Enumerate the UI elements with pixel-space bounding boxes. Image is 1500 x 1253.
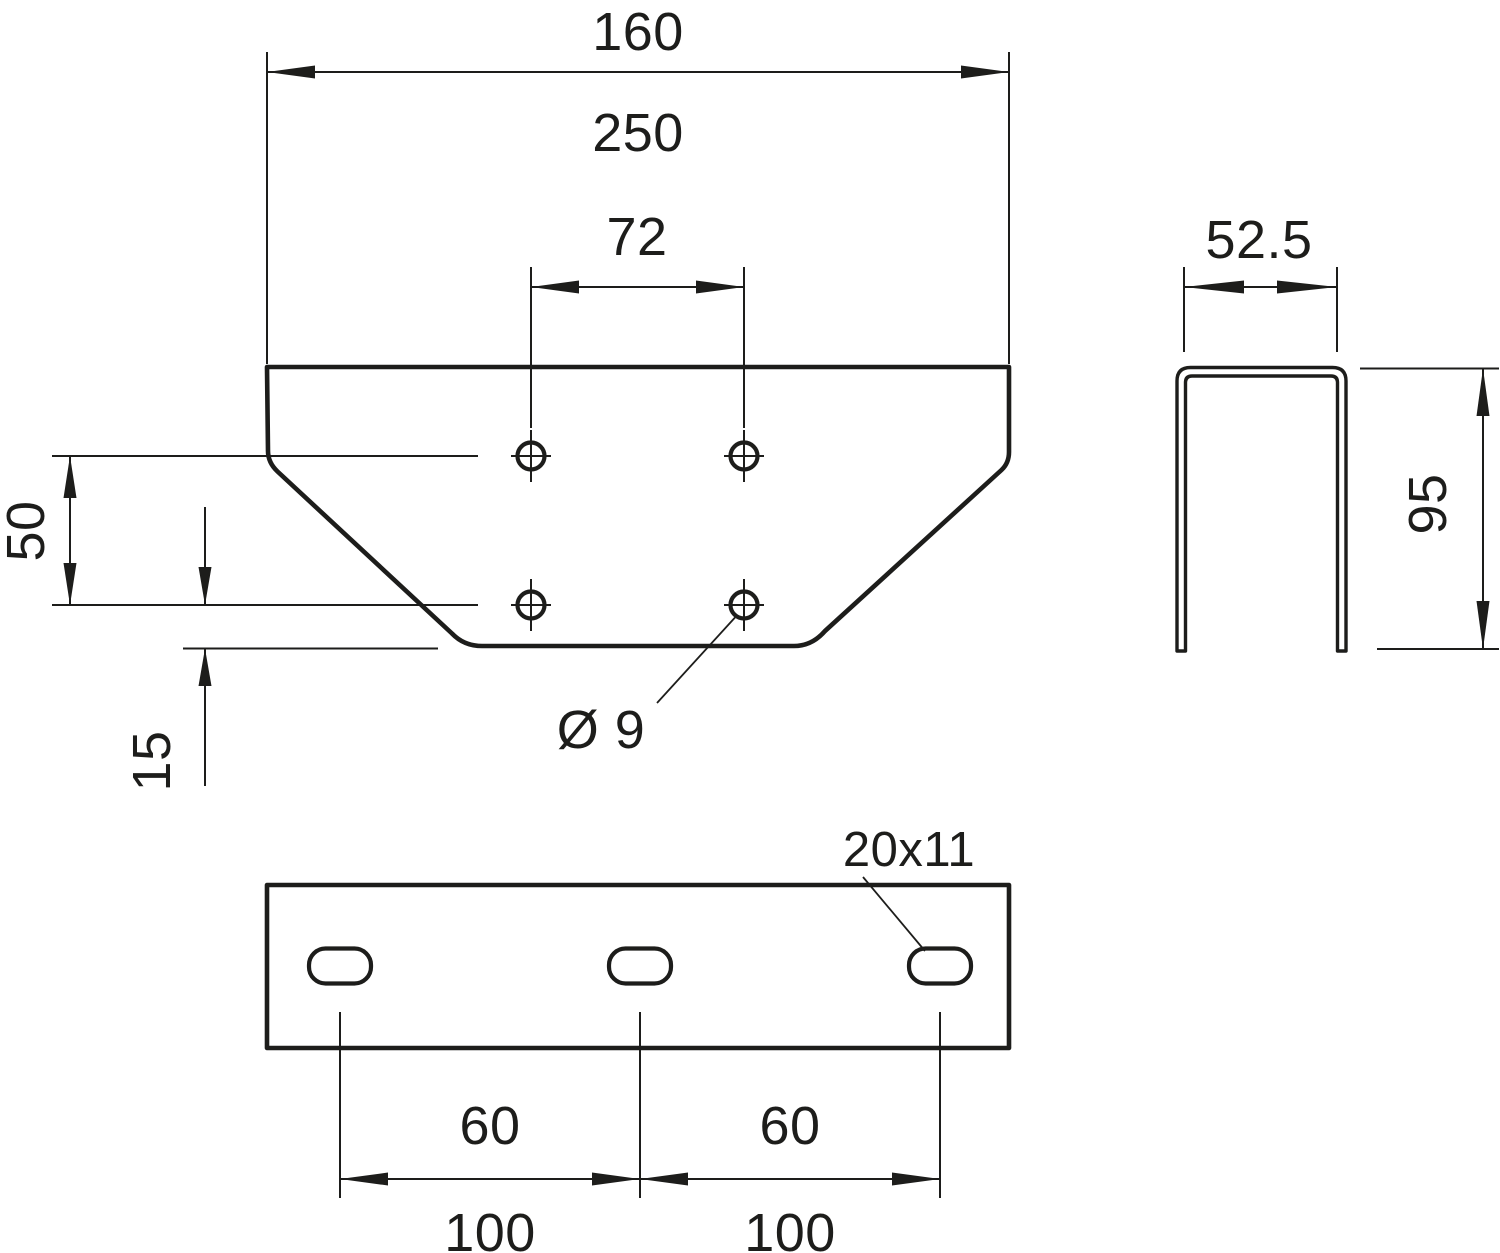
drawing-background	[0, 0, 1500, 1253]
dim-label-95: 95	[1398, 473, 1458, 534]
hole-diameter-label: Ø 9	[557, 700, 646, 760]
dim-label-72: 72	[606, 207, 667, 267]
dim-label-100-left: 100	[444, 1203, 536, 1253]
technical-drawing-page: 160 250 72	[0, 0, 1500, 1253]
dim-label-100-right: 100	[744, 1203, 836, 1253]
dim-label-52-5: 52.5	[1205, 210, 1312, 270]
drawing-canvas: 160 250 72	[0, 0, 1500, 1253]
dim-label-50: 50	[0, 500, 56, 561]
slot-size-label: 20x11	[843, 823, 975, 877]
dim-label-250: 250	[592, 103, 684, 163]
dim-label-60-left: 60	[459, 1096, 520, 1156]
dim-label-160: 160	[592, 2, 684, 62]
dim-label-60-right: 60	[759, 1096, 820, 1156]
dim-label-15: 15	[122, 730, 182, 791]
